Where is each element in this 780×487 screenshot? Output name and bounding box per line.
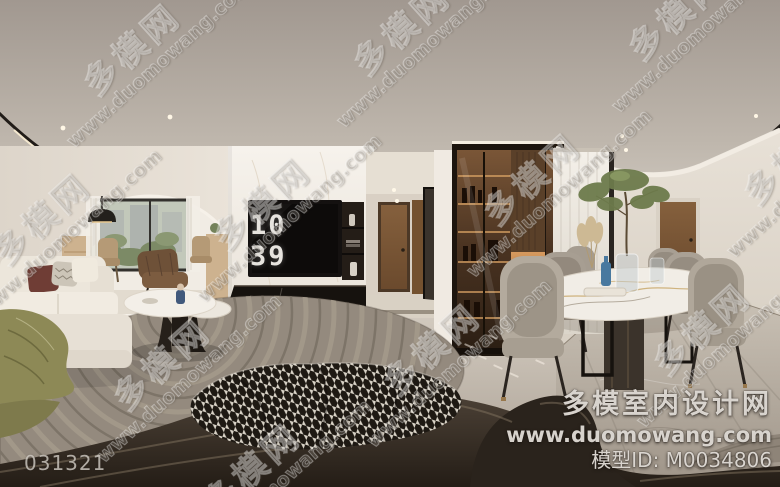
- table-tray: [584, 288, 626, 296]
- shelf-vase: [349, 214, 355, 226]
- watermark-site-name: 多模室内设计网: [506, 388, 772, 422]
- glass-partition: [424, 188, 435, 300]
- watermark-model-id: 模型ID: M0034806: [506, 448, 772, 473]
- figurine: [176, 284, 185, 305]
- watermark-site-url: www.duomowang.com: [506, 422, 772, 448]
- watermark-corner: 多模室内设计网 www.duomowang.com 模型ID: M0034806: [506, 388, 772, 473]
- blue-bottle: [601, 262, 611, 286]
- balcony-chair-right: [190, 236, 212, 263]
- balcony-plant: [210, 223, 220, 233]
- door-handle: [401, 248, 405, 252]
- table-bowl: [142, 298, 158, 304]
- shelf-bottle: [350, 262, 357, 276]
- hallway-door: [381, 205, 407, 289]
- panorama-room-render: 10 39 多模网 www.duomowang.com 多模网 www.duom…: [0, 0, 780, 487]
- hallway-door-2: [412, 200, 424, 294]
- pillow-white: [71, 257, 98, 282]
- glass-vase: [616, 254, 638, 292]
- media-shelf: [342, 202, 364, 280]
- hallway: [366, 152, 436, 318]
- frame-code: 031321: [24, 451, 106, 475]
- shelf-books: [346, 240, 360, 243]
- tv-clock-display: 10 39: [250, 222, 340, 260]
